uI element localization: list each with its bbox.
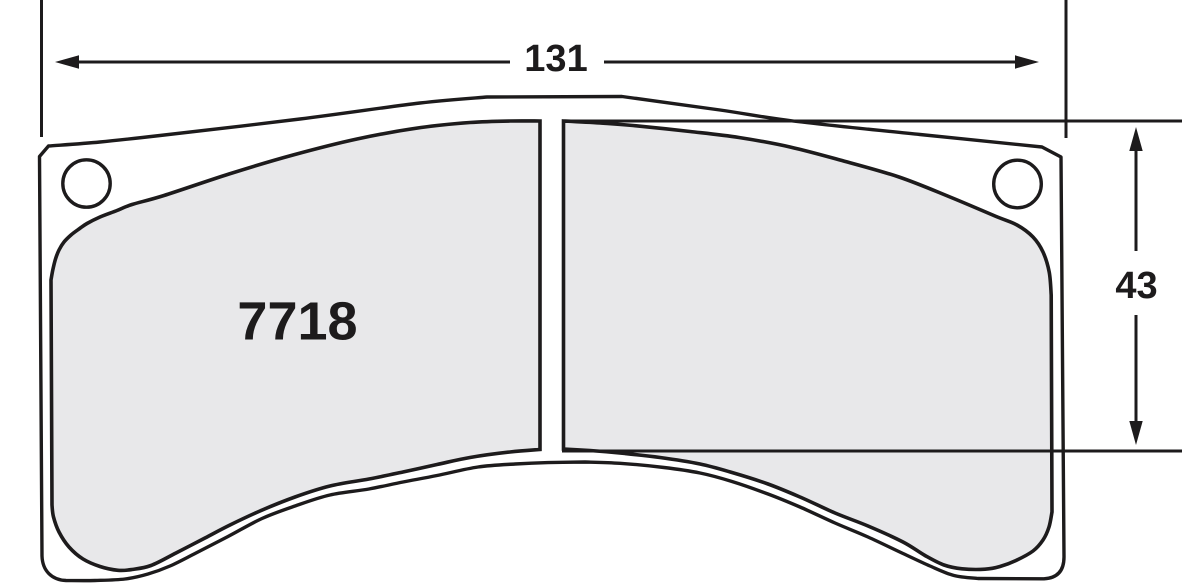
svg-text:131: 131 — [524, 38, 587, 80]
svg-text:43: 43 — [1115, 265, 1157, 307]
svg-text:7718: 7718 — [237, 292, 357, 352]
